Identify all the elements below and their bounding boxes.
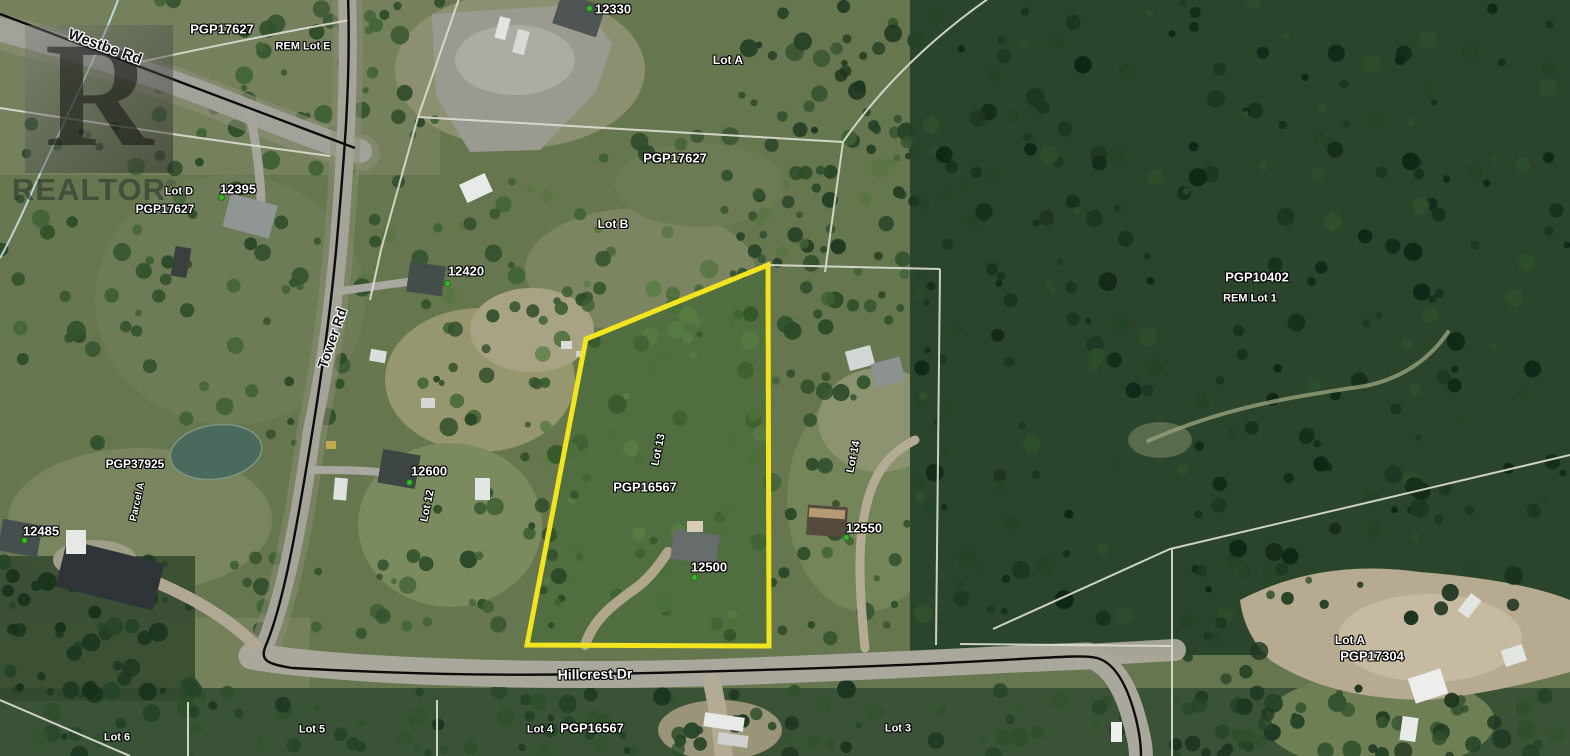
aerial-map[interactable]: R REALTOR® Westbe RdPGP17627REM Lot E123… (0, 0, 1570, 756)
address-marker-dot (586, 5, 593, 12)
map-canvas (0, 0, 1570, 756)
address-marker-dot (21, 537, 28, 544)
address-marker-dot (406, 479, 413, 486)
address-marker-dot (444, 280, 451, 287)
address-marker-dot (691, 574, 698, 581)
address-marker-dot (843, 534, 850, 541)
address-marker-dot (218, 194, 225, 201)
